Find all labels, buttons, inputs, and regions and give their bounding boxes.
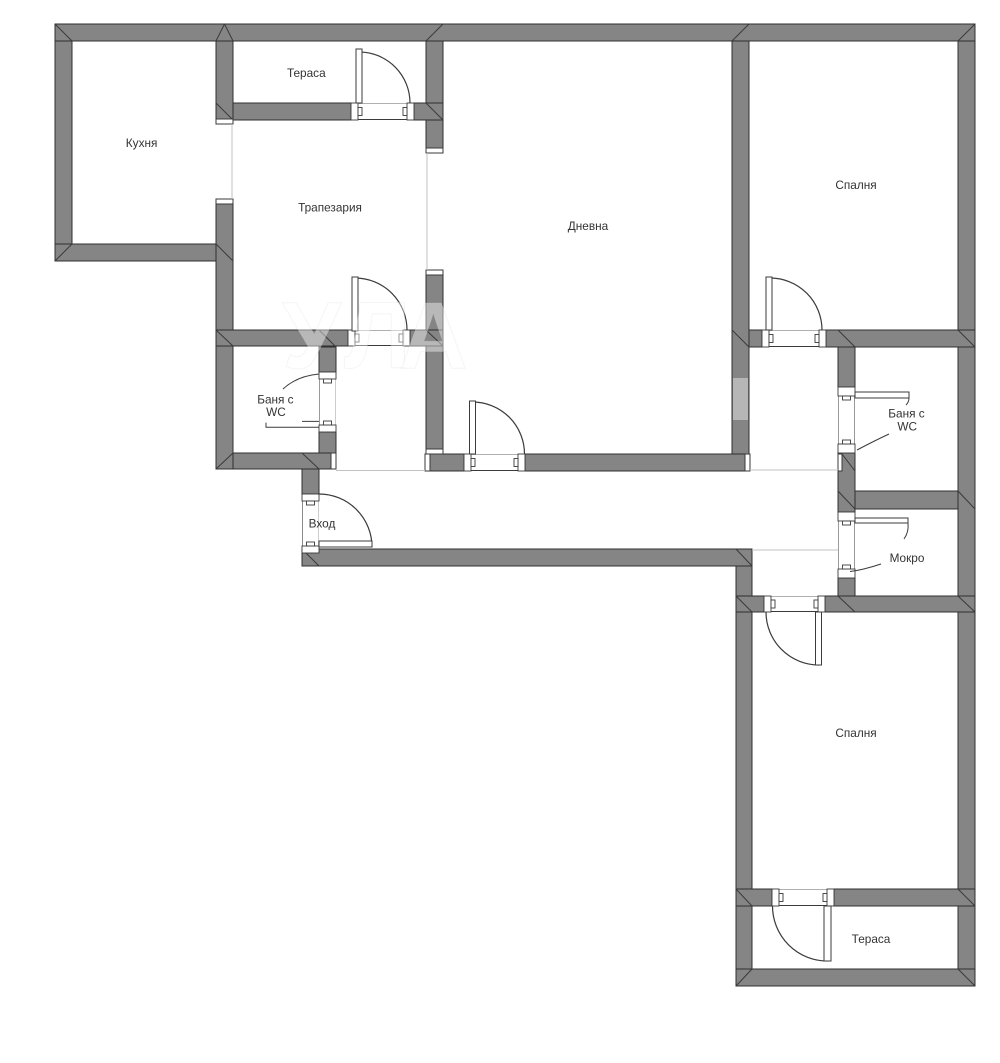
- svg-text:Кухня: Кухня: [126, 136, 158, 150]
- svg-text:Мокро: Мокро: [890, 551, 925, 565]
- svg-text:WC: WC: [266, 405, 286, 419]
- svg-text:Баня с: Баня с: [888, 407, 924, 421]
- svg-text:Тераса: Тераса: [852, 932, 891, 946]
- svg-text:WC: WC: [897, 420, 917, 434]
- svg-text:Дневна: Дневна: [568, 219, 609, 233]
- svg-text:А: А: [399, 283, 468, 389]
- svg-text:Спалня: Спалня: [835, 726, 876, 740]
- svg-text:Вход: Вход: [309, 517, 336, 531]
- svg-text:Спалня: Спалня: [835, 178, 876, 192]
- svg-text:У: У: [282, 283, 342, 389]
- svg-text:Тераса: Тераса: [287, 66, 326, 80]
- svg-text:Трапезария: Трапезария: [298, 201, 362, 215]
